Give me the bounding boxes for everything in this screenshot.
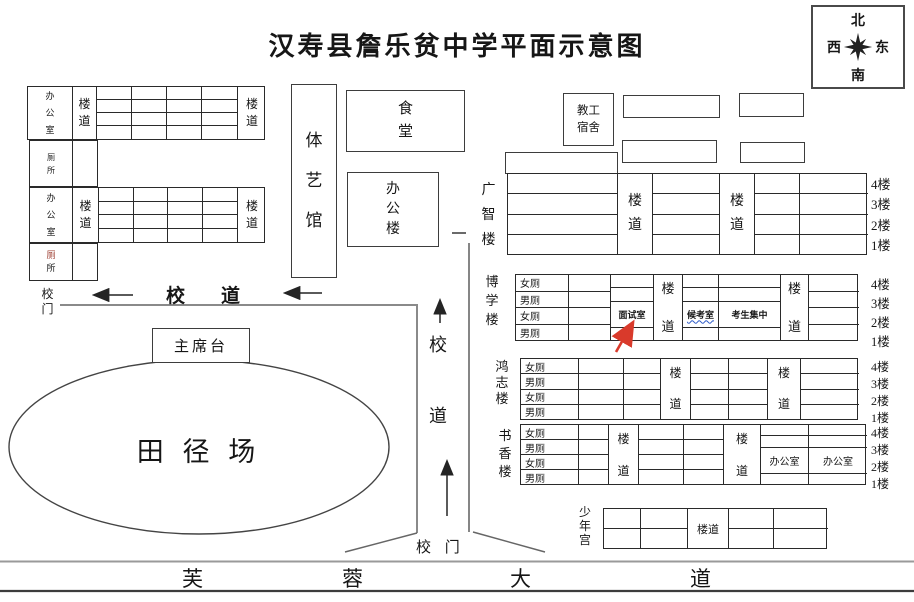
avenue-char-4: 道 <box>690 563 711 593</box>
grid-cell <box>99 188 134 202</box>
corridor-label: 楼道 <box>246 198 259 232</box>
room-cell <box>719 288 780 301</box>
waiting-room-column: 候考室 <box>683 275 719 340</box>
school-gate-south-label: 校 门 <box>416 536 465 557</box>
staff-dorm-building: 教工宿舍 <box>563 93 614 146</box>
compass-south-label: 南 <box>851 65 865 85</box>
toilet-char-red: 厕 <box>46 249 55 262</box>
room-cell <box>801 359 859 374</box>
room-cell <box>801 405 859 419</box>
grid-cell <box>203 215 238 229</box>
room-cell <box>755 215 799 235</box>
floor-label: 1楼 <box>871 475 889 492</box>
track-field-label: 田 径 场 <box>89 430 309 469</box>
corridor-column: 楼道 <box>618 174 653 254</box>
room-cell <box>604 529 640 548</box>
floor-label: 2楼 <box>871 458 889 475</box>
room-cell <box>761 474 808 484</box>
wc-cell: 女厕 <box>516 275 568 292</box>
corridor-label: 楼道 <box>628 190 643 238</box>
room-cell <box>579 374 623 389</box>
room-column <box>755 174 800 254</box>
room-cell <box>639 440 683 455</box>
wc-column: 女厕 男厕 女厕 男厕 <box>516 275 569 340</box>
staff-dorm-label: 教工宿舍 <box>576 103 602 137</box>
room-cell <box>508 235 617 254</box>
room-column <box>653 174 720 254</box>
hongzhi-floor-labels: 4楼 3楼 2楼 1楼 <box>871 358 889 420</box>
wc-cell: 男厕 <box>516 325 568 341</box>
room-cell <box>624 359 660 374</box>
corridor-label: 楼道 <box>669 358 682 420</box>
corridor-column: 楼道 <box>73 87 97 139</box>
page-title: 汉寿县詹乐贫中学平面示意图 <box>0 26 914 63</box>
room-cell <box>579 405 623 419</box>
grid-cell <box>132 113 167 126</box>
room-cell <box>639 455 683 470</box>
classroom-grid <box>97 87 238 139</box>
compass: 北 西 东 南 <box>811 5 905 89</box>
toilet-cell: 厕所 <box>30 141 73 186</box>
room-cell <box>729 405 767 419</box>
room-cell <box>508 174 617 194</box>
room-cell <box>624 405 660 419</box>
grid-cell <box>97 126 132 139</box>
grid-cell <box>167 100 202 113</box>
empty-block-2 <box>739 93 804 117</box>
room-column <box>809 275 859 340</box>
room-column <box>569 275 611 340</box>
grid-cell <box>202 113 237 126</box>
room-cell <box>684 470 723 484</box>
room-cell <box>579 440 608 455</box>
office-building-label: 办公楼 <box>385 180 402 240</box>
room-cell <box>691 374 728 389</box>
waiting-room-label: 候考室 <box>687 308 714 321</box>
office-room-label: 办公室 <box>46 190 56 241</box>
corridor-column: 楼道 <box>609 425 639 484</box>
floor-label: 2楼 <box>871 312 890 331</box>
corridor-label: 楼道 <box>688 509 728 548</box>
room-cell <box>800 194 868 214</box>
grid-cell <box>134 229 169 243</box>
wc-cell: 男厕 <box>521 470 578 484</box>
gathering-column: 考生集中 <box>719 275 781 340</box>
compass-north-label: 北 <box>851 10 865 30</box>
room-cell <box>611 275 653 288</box>
boxue-building-label: 博学楼 <box>484 272 500 329</box>
floor-label: 3楼 <box>871 293 890 312</box>
grid-cell <box>203 188 238 202</box>
floor-label: 3楼 <box>871 375 889 392</box>
grid-cell <box>168 202 203 216</box>
gate-funnel-right-line <box>473 532 545 552</box>
guangzhi-building-label: 广智楼 <box>480 178 497 253</box>
room-cell <box>684 440 723 455</box>
grid-cell <box>167 126 202 139</box>
room-cell <box>719 328 780 340</box>
room-cell <box>641 529 687 548</box>
corridor-label: 楼道 <box>788 270 802 346</box>
floor-label: 4楼 <box>871 358 889 375</box>
grid-cell <box>134 215 169 229</box>
avenue-char-1: 芙 <box>182 563 203 593</box>
grid-cell <box>168 215 203 229</box>
grid-cell <box>203 229 238 243</box>
room-cell <box>719 275 780 288</box>
room-cell <box>801 374 859 389</box>
room-cell <box>508 194 617 214</box>
canteen-building: 食堂 <box>346 90 465 152</box>
hongzhi-building-label: 鸿志楼 <box>494 359 510 407</box>
room-column <box>579 359 624 419</box>
room-cell <box>755 194 799 214</box>
room-cell <box>729 529 773 548</box>
floor-label: 2楼 <box>871 214 891 235</box>
grid-cell <box>167 113 202 126</box>
classroom-grid <box>99 188 238 242</box>
empty-block-5 <box>505 152 618 174</box>
grid-cell <box>134 188 169 202</box>
corridor-column: 楼道 <box>781 275 809 340</box>
grid-cell <box>134 202 169 216</box>
room-cell <box>653 215 719 235</box>
room-cell <box>579 470 608 484</box>
room-cell <box>639 470 683 484</box>
room-cell <box>639 425 683 440</box>
empty-block-1 <box>623 95 720 118</box>
room-cell <box>809 425 867 436</box>
floor-label: 3楼 <box>871 194 891 215</box>
campus-road-vertical-char-1: 校 <box>429 331 447 357</box>
wc-cell: 女厕 <box>516 308 568 325</box>
room-cell <box>691 390 728 405</box>
hongzhi-building-table: 女厕 男厕 女厕 男厕 楼道 楼道 <box>520 358 858 420</box>
interview-room-column: 面试室 <box>611 275 654 340</box>
office-column: 办公室 <box>761 425 809 484</box>
boxue-building-table: 女厕 男厕 女厕 男厕 面试室 楼道 候考室 考生集中 楼道 <box>515 274 858 341</box>
left-office-building-2: 办公室 楼道 楼道 <box>29 187 265 243</box>
floor-label: 4楼 <box>871 424 889 441</box>
room-column <box>684 425 724 484</box>
corridor-column: 楼道 <box>724 425 761 484</box>
wc-cell: 男厕 <box>521 374 578 389</box>
gate-funnel-left-line <box>345 533 417 552</box>
grid-cell <box>132 87 167 100</box>
floor-label: 1楼 <box>871 235 891 256</box>
corridor-column: 楼道 <box>661 359 691 419</box>
room-cell <box>729 390 767 405</box>
office-column: 办公室 <box>809 425 867 484</box>
interview-room-label: 面试室 <box>618 308 645 321</box>
wc-cell: 男厕 <box>521 405 578 419</box>
room-cell <box>800 235 868 254</box>
campus-road-vertical-char-2: 道 <box>429 402 447 428</box>
room-cell <box>653 235 719 254</box>
room-cell <box>684 455 723 470</box>
left-office-building-1: 办公室 楼道 楼道 <box>27 86 265 140</box>
wc-cell: 女厕 <box>521 390 578 405</box>
office-room-label: 办公室 <box>45 88 55 139</box>
room-cell <box>729 374 767 389</box>
room-cell <box>604 509 640 529</box>
room-cell <box>774 509 828 529</box>
rostrum-box: 主席台 <box>152 328 250 363</box>
canteen-label: 食堂 <box>397 98 415 144</box>
wc-cell: 女厕 <box>521 455 578 470</box>
shuxiang-building-table: 女厕 男厕 女厕 男厕 楼道 楼道 办公室 办公室 <box>520 424 866 485</box>
toilet-label: 厕所 <box>47 151 56 177</box>
grid-cell <box>202 100 237 113</box>
grid-cell <box>202 126 237 139</box>
avenue-char-2: 蓉 <box>342 563 363 593</box>
floor-label: 3楼 <box>871 441 889 458</box>
grid-cell <box>202 87 237 100</box>
compass-east-label: 东 <box>875 37 889 57</box>
room-cell <box>801 390 859 405</box>
room-cell <box>761 425 808 436</box>
corridor-label: 楼道 <box>778 358 791 420</box>
grid-cell <box>132 100 167 113</box>
room-cell <box>641 509 687 529</box>
room-cell <box>579 390 623 405</box>
corridor-label: 楼道 <box>79 198 92 232</box>
room-cell <box>579 425 608 440</box>
compass-rose-icon <box>843 32 873 62</box>
wc-cell: 男厕 <box>521 440 578 455</box>
room-column <box>508 174 618 254</box>
room-cell <box>569 308 610 325</box>
interview-room-cell: 面试室 <box>611 302 653 328</box>
toilet-box-1: 厕所 <box>29 140 98 187</box>
grid-cell <box>203 202 238 216</box>
office-room-column: 办公室 <box>28 87 73 139</box>
waiting-room-cell: 候考室 <box>683 302 718 328</box>
avenue-char-3: 大 <box>510 563 531 593</box>
room-column <box>604 509 641 548</box>
grid-cell <box>132 126 167 139</box>
youth-palace-label: 少年宫 <box>578 505 592 547</box>
campus-road-horizontal-label: 校道 <box>166 281 276 308</box>
room-column <box>691 359 729 419</box>
room-column <box>800 174 868 254</box>
wc-cell: 男厕 <box>516 292 568 309</box>
room-cell <box>809 474 867 484</box>
room-cell <box>691 405 728 419</box>
room-cell <box>624 374 660 389</box>
toilet-char: 所 <box>46 262 55 275</box>
room-cell <box>800 174 868 194</box>
office-cell: 办公室 <box>761 448 808 474</box>
room-column <box>641 509 688 548</box>
toilet-box-2: 厕 所 <box>29 243 98 281</box>
room-cell <box>508 215 617 235</box>
school-gate-west-label: 校门 <box>40 287 55 317</box>
corridor-label: 楼道 <box>246 96 259 130</box>
room-cell <box>729 359 767 374</box>
room-cell <box>809 436 867 447</box>
room-cell <box>569 325 610 341</box>
grid-cell <box>168 229 203 243</box>
gathering-label: 考生集中 <box>731 308 767 321</box>
wc-column: 女厕 男厕 女厕 男厕 <box>521 425 579 484</box>
room-cell <box>683 328 718 340</box>
room-cell <box>569 275 610 292</box>
room-cell <box>809 292 859 309</box>
grid-cell <box>167 87 202 100</box>
room-cell <box>755 174 799 194</box>
guangzhi-floor-labels: 4楼 3楼 2楼 1楼 <box>871 173 891 255</box>
grid-cell <box>168 188 203 202</box>
corridor-column: 楼道 <box>688 509 729 548</box>
wc-cell: 女厕 <box>521 425 578 440</box>
room-cell <box>809 308 859 325</box>
office-cell: 办公室 <box>809 448 867 474</box>
rostrum-label: 主席台 <box>174 335 228 356</box>
toilet-side-cell <box>73 244 99 280</box>
office-room-column: 办公室 <box>30 188 73 242</box>
room-column <box>624 359 661 419</box>
guangzhi-building-table: 楼道 楼道 <box>507 173 867 255</box>
room-cell <box>684 425 723 440</box>
gym-building: 体艺馆 <box>291 84 337 278</box>
corridor-label: 楼道 <box>78 96 91 130</box>
corridor-column: 楼道 <box>654 275 683 340</box>
room-column <box>579 425 609 484</box>
room-cell <box>611 288 653 301</box>
empty-block-4 <box>740 142 805 163</box>
room-cell <box>761 436 808 447</box>
floor-label: 1楼 <box>871 331 890 350</box>
corridor-column: 楼道 <box>768 359 801 419</box>
wc-column: 女厕 男厕 女厕 男厕 <box>521 359 579 419</box>
floor-label: 4楼 <box>871 274 890 293</box>
boxue-floor-labels: 4楼 3楼 2楼 1楼 <box>871 274 890 341</box>
room-cell <box>755 235 799 254</box>
room-column <box>729 359 768 419</box>
room-cell <box>569 292 610 309</box>
toilet-cell: 厕 所 <box>30 244 73 280</box>
grid-cell <box>97 113 132 126</box>
wc-cell: 女厕 <box>521 359 578 374</box>
corridor-column: 楼道 <box>238 87 266 139</box>
room-cell <box>774 529 828 548</box>
campus-map: 汉寿县詹乐贫中学平面示意图 北 西 东 南 办公室 楼道 楼道 厕所 <box>0 0 914 602</box>
office-building: 办公楼 <box>347 172 439 247</box>
room-cell <box>579 455 608 470</box>
grid-cell <box>99 202 134 216</box>
shuxiang-building-label: 书香楼 <box>497 427 513 481</box>
corridor-label: 楼道 <box>661 270 675 346</box>
corridor-label: 楼道 <box>736 423 749 487</box>
grid-cell <box>97 87 132 100</box>
gathering-cell: 考生集中 <box>719 302 780 328</box>
corridor-label: 楼道 <box>617 423 630 487</box>
room-column <box>729 509 774 548</box>
room-cell <box>579 359 623 374</box>
room-cell <box>611 328 653 340</box>
room-column <box>801 359 859 419</box>
room-cell <box>729 509 773 529</box>
floor-label: 2楼 <box>871 392 889 409</box>
compass-west-label: 西 <box>827 37 841 57</box>
room-cell <box>800 215 868 235</box>
gym-label: 体艺馆 <box>304 121 324 241</box>
room-cell <box>809 325 859 341</box>
room-cell <box>624 390 660 405</box>
room-column <box>639 425 684 484</box>
room-column <box>774 509 828 548</box>
empty-block-3 <box>622 140 717 163</box>
youth-palace-table: 楼道 <box>603 508 827 549</box>
corridor-column: 楼道 <box>238 188 266 242</box>
room-cell <box>653 174 719 194</box>
corridor-label: 楼道 <box>730 190 745 238</box>
grid-cell <box>97 100 132 113</box>
grid-cell <box>99 215 134 229</box>
room-cell <box>683 288 718 301</box>
toilet-side-cell <box>73 141 99 186</box>
room-cell <box>683 275 718 288</box>
floor-label: 4楼 <box>871 173 891 194</box>
corridor-column: 楼道 <box>720 174 755 254</box>
room-cell <box>653 194 719 214</box>
shuxiang-floor-labels: 4楼 3楼 2楼 1楼 <box>871 424 889 485</box>
grid-cell <box>99 229 134 243</box>
room-cell <box>809 275 859 292</box>
corridor-column: 楼道 <box>73 188 99 242</box>
room-cell <box>691 359 728 374</box>
